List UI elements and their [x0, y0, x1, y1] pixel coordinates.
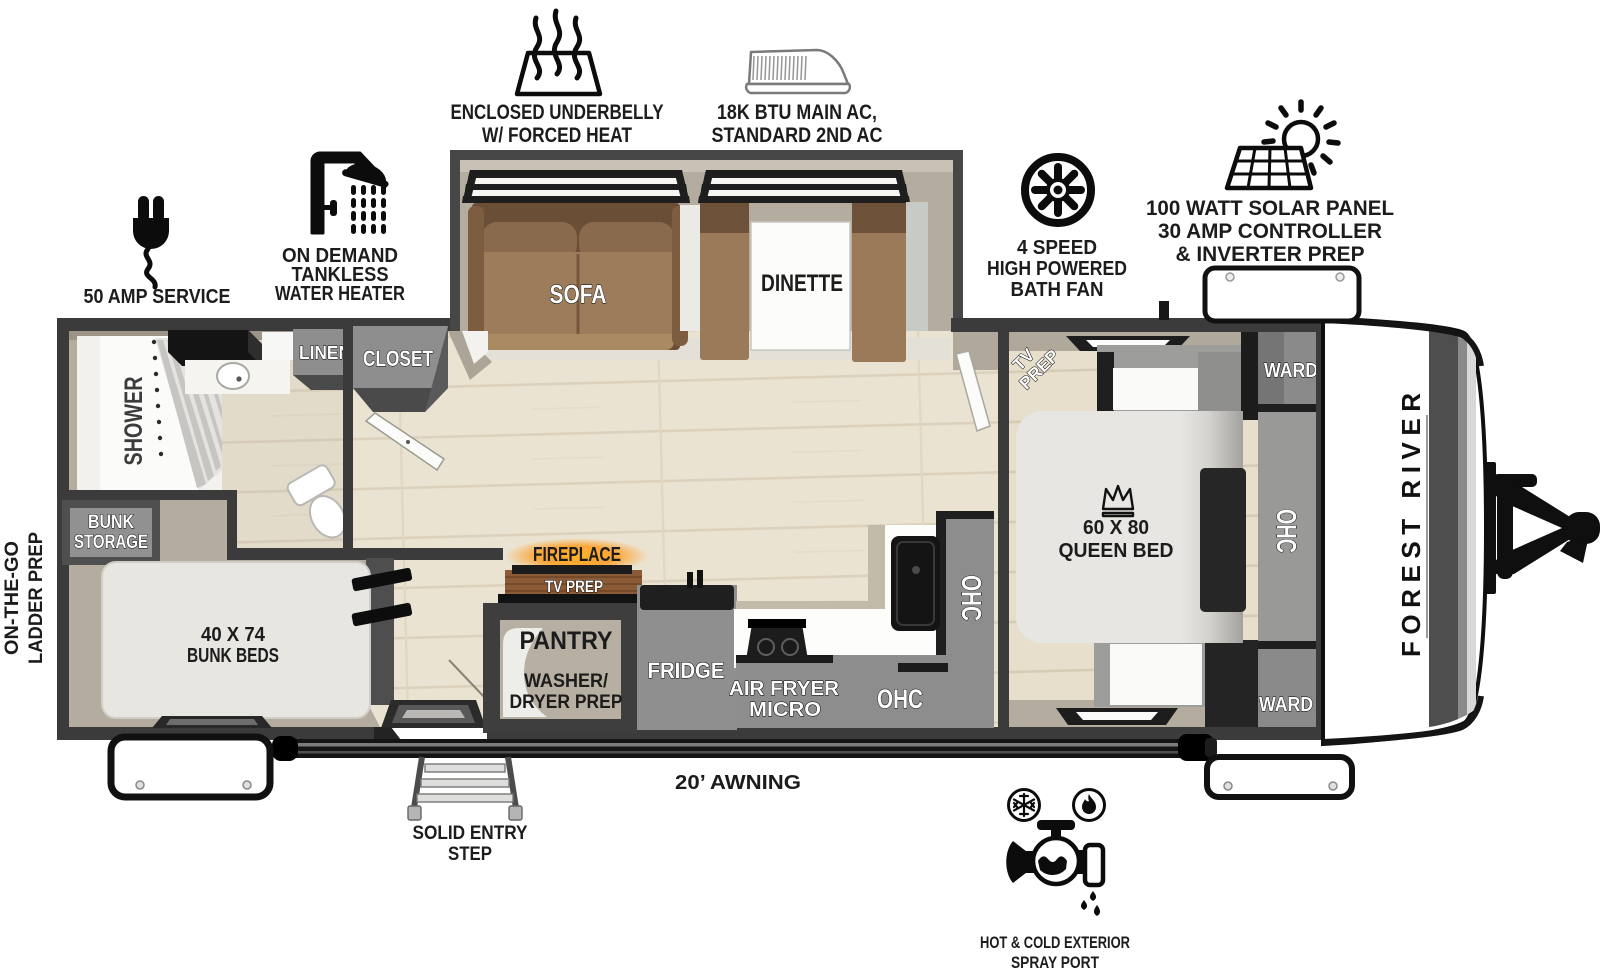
svg-text:QUEEN BED: QUEEN BED	[1059, 540, 1174, 562]
svg-text:SPRAY PORT: SPRAY PORT	[1011, 953, 1099, 972]
svg-text:ENCLOSED UNDERBELLY: ENCLOSED UNDERBELLY	[451, 100, 664, 124]
svg-text:OHC: OHC	[956, 575, 987, 621]
svg-text:STEP: STEP	[448, 843, 492, 865]
svg-text:SHOWER: SHOWER	[120, 377, 148, 466]
svg-text:HOT & COLD EXTERIOR: HOT & COLD EXTERIOR	[980, 933, 1130, 952]
svg-text:LADDER PREP: LADDER PREP	[25, 532, 47, 664]
svg-text:20’ AWNING: 20’ AWNING	[675, 771, 801, 794]
svg-text:FRIDGE: FRIDGE	[648, 658, 725, 683]
svg-text:WATER HEATER: WATER HEATER	[275, 283, 405, 305]
svg-text:W/ FORCED HEAT: W/ FORCED HEAT	[482, 123, 632, 147]
svg-text:DRYER PREP: DRYER PREP	[510, 691, 623, 713]
svg-text:HIGH POWERED: HIGH POWERED	[987, 258, 1127, 280]
svg-text:DINETTE: DINETTE	[761, 270, 843, 297]
svg-text:40 X 74: 40 X 74	[201, 624, 266, 646]
svg-text:60 X 80: 60 X 80	[1083, 517, 1149, 539]
svg-text:SOLID ENTRY: SOLID ENTRY	[413, 822, 528, 844]
svg-text:WARD: WARD	[1264, 360, 1318, 382]
svg-text:WASHER/: WASHER/	[524, 670, 609, 692]
svg-text:30 AMP CONTROLLER: 30 AMP CONTROLLER	[1158, 219, 1382, 243]
svg-text:WARD: WARD	[1259, 694, 1313, 716]
svg-text:STORAGE: STORAGE	[74, 532, 148, 553]
svg-text:SOFA: SOFA	[550, 279, 607, 309]
svg-text:BATH FAN: BATH FAN	[1011, 279, 1104, 301]
svg-text:50 AMP SERVICE: 50 AMP SERVICE	[84, 286, 231, 308]
svg-text:18K BTU MAIN AC,: 18K BTU MAIN AC,	[717, 100, 877, 124]
svg-text:FIREPLACE: FIREPLACE	[533, 544, 621, 566]
svg-text:BUNK: BUNK	[88, 512, 134, 533]
svg-text:& INVERTER PREP: & INVERTER PREP	[1176, 242, 1365, 266]
svg-text:OHC: OHC	[1271, 509, 1302, 553]
svg-text:STANDARD 2ND AC: STANDARD 2ND AC	[712, 123, 883, 147]
svg-text:CLOSET: CLOSET	[363, 346, 433, 371]
svg-text:TV PREP: TV PREP	[545, 577, 603, 596]
svg-text:OHC: OHC	[877, 684, 923, 714]
svg-text:ON-THE-GO: ON-THE-GO	[1, 541, 23, 655]
svg-text:100 WATT SOLAR PANEL: 100 WATT SOLAR PANEL	[1146, 196, 1394, 220]
svg-text:AIR FRYER: AIR FRYER	[729, 677, 839, 700]
svg-text:BUNK BEDS: BUNK BEDS	[187, 645, 279, 667]
svg-text:FOREST RIVER: FOREST RIVER	[1396, 389, 1426, 657]
svg-text:4 SPEED: 4 SPEED	[1017, 237, 1097, 259]
svg-text:MICRO: MICRO	[749, 698, 821, 721]
svg-text:PANTRY: PANTRY	[520, 627, 613, 655]
